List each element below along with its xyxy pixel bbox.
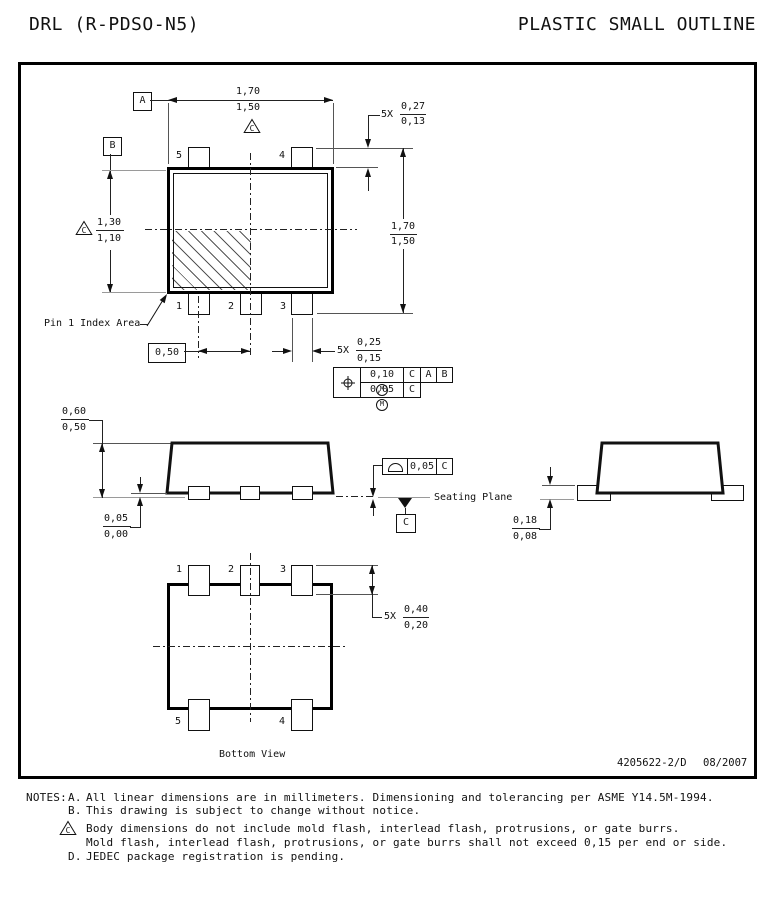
- arrowhead-icon: [137, 497, 143, 506]
- fcf-datum: A: [420, 367, 437, 383]
- bottom-pad-5: [188, 699, 210, 731]
- pin-label: 5: [176, 150, 182, 162]
- extension-line: [292, 318, 293, 362]
- dimension-line: [110, 154, 111, 215]
- pin-label: 4: [279, 150, 285, 162]
- pin-label: 3: [280, 301, 286, 313]
- arrowhead-icon: [99, 443, 105, 452]
- pkg-height-min: 0,50: [62, 422, 86, 434]
- drawing-element: [382, 458, 408, 475]
- arrowhead-icon: [241, 348, 250, 354]
- dimension-line: [403, 148, 404, 219]
- dimension-line: [272, 351, 283, 352]
- centerline: [145, 229, 357, 230]
- dim-overall-max: 1,70: [391, 221, 415, 233]
- dimension-line: [373, 465, 374, 489]
- extension-line: [542, 485, 575, 486]
- centerline: [250, 553, 251, 722]
- extension-line: [168, 103, 169, 164]
- position-symbol-icon: [341, 376, 355, 390]
- standoff-max: 0,05: [104, 513, 128, 525]
- dimension-line: [403, 617, 429, 618]
- dim-body-h-max: 1,30: [97, 217, 121, 229]
- dimension-line: [96, 230, 124, 231]
- datum-triangle-icon: [398, 498, 412, 508]
- bottom-view-caption: Bottom View: [219, 749, 285, 761]
- pin-label: 1: [176, 564, 182, 576]
- dimension-line: [356, 350, 382, 351]
- surface-profile-symbol-icon: [388, 463, 403, 472]
- arrowhead-icon: [370, 499, 376, 508]
- arrowhead-icon: [324, 97, 333, 103]
- drawing-element: [333, 367, 361, 398]
- arrowhead-icon: [400, 304, 406, 313]
- datum-a-box: A: [133, 92, 152, 111]
- dim-width-max: 1,70: [236, 86, 260, 98]
- dimension-line: [130, 527, 141, 528]
- dimension-line: [373, 508, 374, 516]
- arrowhead-icon: [365, 168, 371, 177]
- dim-width-min: 1,50: [236, 102, 260, 114]
- dimension-line: [512, 528, 540, 529]
- pin1-leader-arrow-icon: [144, 290, 172, 328]
- pin-label: 2: [228, 564, 234, 576]
- dimension-line: [372, 595, 373, 618]
- extension-line: [317, 313, 413, 314]
- mmc-modifier-icon: M: [376, 399, 388, 411]
- dim-overall-min: 1,50: [391, 236, 415, 248]
- dimension-line: [103, 526, 131, 527]
- flatness-datum: C: [436, 458, 453, 475]
- arrowhead-icon: [312, 348, 321, 354]
- drawing-page: DRL (R-PDSO-N5) PLASTIC SMALL OUTLINE A …: [0, 0, 776, 897]
- pin-3-lead: [291, 291, 313, 315]
- dimension-line: [368, 177, 369, 191]
- extension-line: [336, 167, 378, 168]
- lead-len-min: 0,13: [401, 116, 425, 128]
- dimension-line: [61, 419, 89, 420]
- extension-line: [316, 148, 413, 149]
- arrowhead-icon: [400, 148, 406, 157]
- dimension-line: [321, 351, 335, 352]
- page-title-right: PLASTIC SMALL OUTLINE: [518, 14, 756, 35]
- seating-plane-label: Seating Plane: [434, 492, 512, 504]
- drawing-element: 0,05 M: [360, 382, 404, 398]
- drawing-element: 0,10 M: [360, 367, 404, 383]
- pin-4-lead: [291, 147, 313, 169]
- arrowhead-icon: [369, 586, 375, 595]
- pkg-height-max: 0,60: [62, 406, 86, 418]
- note-c-text: Body dimensions do not include mold flas…: [86, 822, 680, 835]
- arrowhead-icon: [168, 97, 177, 103]
- pad-len-max: 0,40: [404, 604, 428, 616]
- fcf-datum: C: [403, 382, 421, 398]
- page-title-left: DRL (R-PDSO-N5): [29, 14, 199, 35]
- doc-number: 4205622-2/D: [617, 757, 687, 769]
- note-b-id: B.: [68, 804, 82, 817]
- dimension-line: [390, 234, 417, 235]
- note-a-text: All linear dimensions are in millimeters…: [86, 791, 714, 804]
- drawing-element: C: [250, 124, 255, 133]
- dim-body-h-min: 1,10: [97, 233, 121, 245]
- arrowhead-icon: [107, 170, 113, 179]
- side-pad: [188, 486, 210, 500]
- fcf-datum: B: [436, 367, 453, 383]
- arrowhead-icon: [283, 348, 292, 354]
- pin-label: 3: [280, 564, 286, 576]
- note-d-text: JEDEC package registration is pending.: [86, 850, 345, 863]
- arrowhead-icon: [370, 488, 376, 497]
- pin-2-lead: [240, 291, 262, 315]
- package-body-end-view: [590, 438, 730, 500]
- flatness-fcf: 0,05 C: [382, 458, 453, 475]
- dimension-line: [372, 617, 382, 618]
- dimension-line: [368, 115, 369, 139]
- extension-line: [333, 103, 334, 164]
- extension-line: [540, 499, 574, 500]
- dimension-line: [140, 506, 141, 528]
- drawing-element: C: [82, 226, 87, 235]
- bottom-pad-4: [291, 699, 313, 731]
- bottom-pad-1: [188, 565, 210, 596]
- dimension-line: [368, 115, 380, 116]
- extension-line: [131, 493, 167, 494]
- note-c-flag-icon: C: [59, 820, 77, 836]
- dimension-line: [400, 114, 426, 115]
- dimension-line: [373, 465, 382, 466]
- lead-w-min: 0,15: [357, 353, 381, 365]
- fcf-tol-1: 0,10: [370, 369, 394, 380]
- lead-w-max: 0,25: [357, 337, 381, 349]
- centerline: [250, 153, 251, 358]
- note-c-text2: Mold flash, interlead flash, protrusions…: [86, 836, 727, 849]
- drawing-element: [160, 294, 167, 303]
- arrowhead-icon: [99, 489, 105, 498]
- note-b-text: This drawing is subject to change withou…: [86, 804, 420, 817]
- datum-b-box: B: [103, 137, 122, 156]
- fcf-tol-2: 0,05: [370, 384, 394, 395]
- arrowhead-icon: [547, 476, 553, 485]
- arrowhead-icon: [137, 484, 143, 493]
- drawing-element: C: [66, 826, 71, 835]
- flatness-value: 0,05: [407, 458, 437, 475]
- pin-label: 1: [176, 301, 182, 313]
- position-fcf: 0,10 M C A B 0,05 M C: [333, 367, 453, 398]
- lead-len-qty: 5X: [381, 109, 393, 121]
- pad-len-min: 0,20: [404, 620, 428, 632]
- pin-1-lead: [188, 291, 210, 315]
- notes-label: NOTES:: [26, 791, 67, 804]
- pin-label: 4: [279, 716, 285, 728]
- lead-w-qty: 5X: [337, 345, 349, 357]
- arrowhead-icon: [369, 565, 375, 574]
- standoff-min: 0,00: [104, 529, 128, 541]
- note-c-flag-icon: C: [243, 118, 261, 134]
- side-pad: [292, 486, 313, 500]
- pin-label: 5: [175, 716, 181, 728]
- fcf-datum: C: [403, 367, 421, 383]
- dimension-line: [89, 420, 103, 421]
- dimension-line: [550, 508, 551, 530]
- dimension-line: [150, 100, 333, 101]
- side-pad: [240, 486, 260, 500]
- bottom-pad-3: [291, 565, 313, 596]
- arrowhead-icon: [198, 348, 207, 354]
- pin-label: 2: [228, 301, 234, 313]
- doc-date: 08/2007: [703, 757, 747, 769]
- datum-c-box: C: [396, 514, 416, 533]
- pin1-index-label: Pin 1 Index Area: [44, 318, 140, 330]
- arrowhead-icon: [547, 499, 553, 508]
- drawing-element: [597, 443, 723, 493]
- lead-thk-min: 0,08: [513, 531, 537, 543]
- arrowhead-icon: [365, 139, 371, 148]
- dimension-line: [102, 420, 103, 498]
- extension-line: [312, 318, 313, 362]
- lead-len-max: 0,27: [401, 101, 425, 113]
- note-c-flag-icon: C: [75, 220, 93, 236]
- pad-len-qty: 5X: [384, 611, 396, 623]
- pin-5-lead: [188, 147, 210, 169]
- pitch-dim-box: 0,50: [148, 343, 186, 363]
- extension-line: [102, 170, 166, 171]
- note-d-id: D.: [68, 850, 82, 863]
- drawing-element: [147, 300, 163, 326]
- lead-thk-max: 0,18: [513, 515, 537, 527]
- note-a-id: A.: [68, 791, 82, 804]
- dimension-line: [539, 529, 551, 530]
